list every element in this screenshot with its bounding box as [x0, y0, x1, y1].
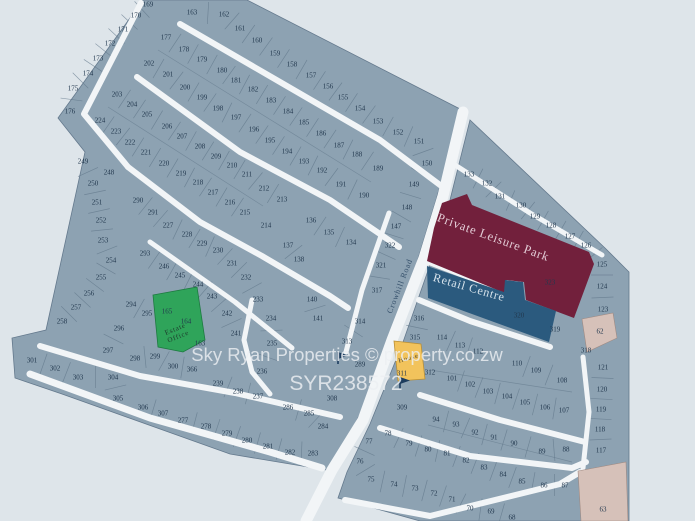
plot-number: 245: [175, 272, 186, 280]
plot-number: 179: [197, 56, 208, 64]
plot-number: 215: [240, 209, 251, 217]
plot-number: 279: [222, 430, 233, 438]
plot-number: 208: [195, 143, 206, 151]
plot-number: 198: [213, 105, 224, 113]
plot-number: 80: [425, 446, 433, 454]
plot-number: 154: [355, 105, 366, 113]
plot-number: 134: [346, 239, 357, 247]
plot-number: 128: [546, 222, 557, 230]
plot-number: 217: [208, 189, 219, 197]
plot-number: 118: [595, 426, 606, 434]
plot-number: 186: [316, 130, 327, 138]
plot-number: 305: [113, 395, 124, 403]
plot-number: 255: [96, 274, 107, 282]
plot-number: 210: [227, 162, 238, 170]
plot-number: 75: [368, 476, 376, 484]
plot-number: 183: [266, 97, 277, 105]
plot-number: 302: [50, 365, 61, 373]
plot-number: 233: [253, 296, 264, 304]
plot-number: 137: [283, 242, 294, 250]
plot-number: 172: [105, 40, 116, 48]
plot-number: 89: [539, 448, 547, 456]
plot-number: 160: [252, 37, 263, 45]
plot-number: 109: [531, 367, 542, 375]
plot-number: 303: [73, 374, 84, 382]
watermark-line1: Sky Ryan Properties © property.co.zw: [191, 344, 503, 365]
plot-number: 304: [108, 374, 119, 382]
plot-number: 121: [598, 364, 609, 372]
plot-number: 178: [179, 46, 190, 54]
plot-number: 316: [414, 315, 425, 323]
map-canvas: Private Leisure ParkRetail CentreEstateO…: [0, 0, 695, 521]
plot-number: 286: [283, 404, 294, 412]
plot-number: 283: [308, 450, 319, 458]
plot-number: 71: [449, 496, 457, 504]
plot-number: 103: [483, 388, 494, 396]
plot-number: 296: [114, 325, 125, 333]
plot-number: 202: [144, 60, 155, 68]
plot-number: 110: [512, 360, 523, 368]
plot-number: 181: [231, 77, 242, 85]
plot-number: 314: [355, 318, 366, 326]
plot-number: 306: [138, 404, 149, 412]
plot-number: 366: [187, 366, 198, 374]
plot-number: 244: [193, 281, 204, 289]
plot-number: 125: [597, 261, 608, 269]
plot-number: 83: [481, 464, 489, 472]
plot-number: 197: [231, 114, 242, 122]
plot-number: 194: [282, 148, 293, 156]
plot-number: 158: [287, 61, 298, 69]
plot-number: 280: [242, 437, 253, 445]
plot-number: 106: [540, 404, 551, 412]
plot-number: 157: [306, 72, 317, 80]
plot-number: 193: [299, 158, 310, 166]
plot-number: 147: [391, 223, 402, 231]
plot-number: 132: [482, 180, 493, 188]
plot-number: 205: [142, 111, 153, 119]
plot-number: 290: [133, 197, 144, 205]
plot-number: 232: [241, 274, 252, 282]
plot-number: 323: [545, 279, 556, 287]
plot-number: 224: [95, 117, 106, 125]
plot-number: 90: [511, 440, 519, 448]
plot-number: 298: [130, 355, 141, 363]
plot-number: 258: [57, 318, 68, 326]
plot-number: 312: [425, 369, 436, 377]
plot-number: 104: [502, 393, 513, 401]
plot-number: 138: [294, 256, 305, 264]
plot-number: 136: [306, 217, 317, 225]
plot-number: 127: [565, 233, 576, 241]
plot-number: 230: [213, 247, 224, 255]
plot-number: 78: [385, 430, 393, 438]
plot-number: 126: [581, 242, 592, 250]
plot-number: 282: [285, 449, 296, 457]
plot-number: 161: [235, 25, 246, 33]
plot-number: 195: [265, 137, 276, 145]
plot-number: 246: [159, 263, 170, 271]
plot-number: 319: [550, 326, 561, 334]
plot-number: 318: [581, 347, 592, 355]
plot-number: 105: [520, 399, 531, 407]
plot-number: 173: [93, 55, 104, 63]
plot-number: 222: [125, 139, 136, 147]
plot-number: 256: [84, 290, 95, 298]
plot-number: 254: [106, 257, 117, 265]
plot-number: 320: [514, 312, 525, 320]
plot-number: 229: [197, 240, 208, 248]
plot-number: 77: [366, 438, 374, 446]
plot-number: 177: [161, 34, 172, 42]
plot-number: 85: [519, 478, 527, 486]
plot-number: 120: [597, 386, 608, 394]
plot-number: 81: [444, 450, 452, 458]
plot-number: 206: [162, 123, 173, 131]
plot-number: 180: [217, 67, 228, 75]
plot-number: 317: [372, 287, 383, 295]
plot-number: 70: [467, 505, 475, 513]
plot-number: 192: [317, 167, 328, 175]
plot-number: 73: [412, 485, 420, 493]
plot-number: 315: [410, 334, 421, 342]
plot-number: 72: [431, 490, 439, 498]
plot-number: 307: [158, 410, 169, 418]
plot-number: 281: [263, 443, 274, 451]
plot-number: 250: [88, 180, 99, 188]
plot-number: 191: [336, 181, 347, 189]
plot-number: 242: [222, 310, 233, 318]
plot-number: 204: [127, 101, 138, 109]
plot-number: 108: [557, 377, 568, 385]
plot-number: 297: [103, 347, 114, 355]
plot-number: 295: [142, 310, 153, 318]
plot-number: 218: [193, 179, 204, 187]
plot-number: 211: [242, 171, 253, 179]
plot-number: 74: [391, 481, 399, 489]
plot-number: 159: [270, 50, 281, 58]
plot-number: 299: [150, 353, 161, 361]
plot-number: 190: [359, 192, 370, 200]
plot-number: 141: [313, 315, 324, 323]
plot-number: 212: [259, 185, 270, 193]
plot-number: 300: [168, 363, 179, 371]
plot-number: 68: [509, 514, 517, 521]
plot-number: 93: [453, 421, 461, 429]
plot-number: 182: [248, 86, 259, 94]
plot-number: 174: [83, 70, 94, 78]
plot-number: 170: [131, 12, 142, 20]
plot-number: 188: [352, 151, 363, 159]
plot-number: 293: [140, 250, 151, 258]
plot-number: 187: [334, 142, 345, 150]
plot-number: 130: [516, 202, 527, 210]
plot-number: 133: [464, 171, 475, 179]
plot-number: 277: [178, 417, 189, 425]
plot-number: 156: [323, 83, 334, 91]
plot-number: 227: [163, 222, 174, 230]
plot-number: 165: [162, 308, 173, 316]
plot-number: 278: [201, 423, 212, 431]
plot-number: 102: [465, 381, 476, 389]
plot-number: 207: [177, 133, 188, 141]
plot-number: 189: [373, 165, 384, 173]
plot-number: 151: [414, 138, 425, 146]
plot-number: 169: [143, 1, 154, 9]
plot-number: 86: [541, 482, 549, 490]
watermark-line2: SYR238572: [289, 372, 402, 395]
plot-number: 69: [488, 508, 496, 516]
plot-number: 184: [283, 108, 294, 116]
plot-number: 253: [98, 237, 109, 245]
plot-number: 216: [225, 199, 236, 207]
plot-number: 84: [500, 471, 508, 479]
plot-number: 87: [562, 482, 570, 490]
plot-number: 251: [92, 199, 103, 207]
plot-number: 238: [233, 388, 244, 396]
plot-number: 214: [261, 222, 272, 230]
site-map: Private Leisure ParkRetail CentreEstateO…: [0, 0, 695, 521]
plot-number: 176: [65, 108, 76, 116]
plot-number: 219: [176, 170, 187, 178]
plot-number: 309: [397, 404, 408, 412]
plot-number: 153: [373, 118, 384, 126]
plot-number: 241: [231, 330, 242, 338]
plot-number: 199: [197, 94, 208, 102]
plot-number: 196: [249, 126, 260, 134]
plot-number: 114: [437, 334, 448, 342]
plot-number: 243: [207, 293, 218, 301]
plot-number: 171: [118, 26, 129, 34]
plot-number: 301: [27, 357, 38, 365]
plot-number: 94: [433, 416, 441, 424]
plot-number: 175: [68, 85, 79, 93]
plot-number: 308: [327, 395, 338, 403]
plot-number: 91: [491, 434, 499, 442]
plot-number: 107: [559, 407, 570, 415]
plot-number: 223: [111, 128, 122, 136]
plot-number: 239: [213, 380, 224, 388]
plot-number: 201: [163, 71, 174, 79]
plot-number: 140: [307, 296, 318, 304]
plot-number: 119: [596, 406, 607, 414]
plot-number: 203: [112, 91, 123, 99]
plot-number: 294: [126, 301, 137, 309]
plot-number: 76: [357, 458, 365, 466]
plot-number: 123: [598, 306, 609, 314]
plot-number: 257: [71, 304, 82, 312]
plot-number: 221: [141, 149, 152, 157]
plot-number: 63: [600, 506, 608, 514]
plot-number: 163: [187, 9, 198, 17]
plot-number: 101: [447, 375, 458, 383]
plot-number: 228: [182, 231, 193, 239]
plot-number: 200: [180, 84, 191, 92]
plot-number: 164: [181, 318, 192, 326]
plot-number: 131: [495, 193, 506, 201]
plot-number: 152: [393, 129, 404, 137]
plot-number: 149: [409, 181, 420, 189]
plot-number: 62: [597, 328, 605, 336]
plot-number: 231: [227, 260, 238, 268]
plot-number: 79: [406, 440, 414, 448]
plot-number: 249: [78, 158, 89, 166]
plot-number: 321: [376, 262, 387, 270]
plot-number: 148: [402, 204, 413, 212]
plot-number: 291: [148, 209, 159, 217]
plot-number: 236: [257, 368, 268, 376]
plot-number: 117: [596, 447, 607, 455]
plot-number: 248: [104, 169, 115, 177]
plot-number: 150: [422, 160, 433, 168]
plot-number: 185: [299, 119, 310, 127]
plot-number: 209: [211, 153, 222, 161]
plot-number: 234: [266, 315, 277, 323]
plot-number: 124: [597, 283, 608, 291]
plot-number: 135: [324, 229, 335, 237]
plot-number: 252: [96, 217, 107, 225]
plot-number: 220: [159, 160, 170, 168]
plot-number: 82: [463, 457, 471, 465]
plot-number: 322: [385, 242, 396, 250]
plot-number: 92: [472, 429, 480, 437]
plot-number: 162: [219, 11, 230, 19]
plot-number: 284: [318, 423, 329, 431]
plot-number: 285: [304, 410, 315, 418]
plot-number: 237: [253, 393, 264, 401]
plot-number: 213: [277, 196, 288, 204]
plot-number: 129: [530, 213, 541, 221]
plot-number: 88: [563, 446, 571, 454]
plot-number: 155: [338, 94, 349, 102]
